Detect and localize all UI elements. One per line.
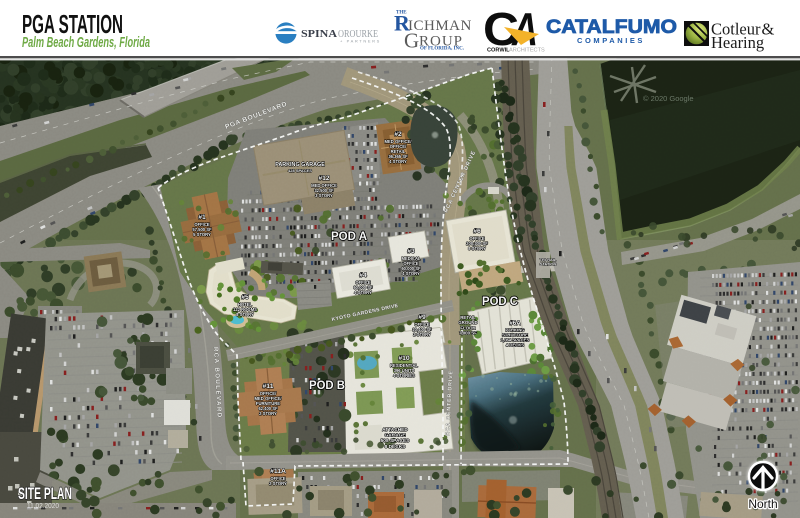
svg-text:ARCHITECTS: ARCHITECTS	[509, 48, 545, 54]
svg-text:CATALFUMO: CATALFUMO	[546, 17, 677, 38]
svg-text:Palm Beach Gardens, Florida: Palm Beach Gardens, Florida	[22, 34, 150, 51]
svg-text:Hearing: Hearing	[711, 33, 764, 52]
svg-text:G: G	[404, 29, 419, 53]
svg-text:CORWIL: CORWIL	[487, 48, 510, 54]
svg-text:+ PARTNERS: + PARTNERS	[340, 39, 381, 44]
svg-text:North: North	[748, 497, 777, 511]
svg-text:SPINA: SPINA	[301, 28, 337, 40]
svg-text:11.02.2020: 11.02.2020	[27, 503, 59, 510]
svg-text:COMPANIES: COMPANIES	[577, 38, 645, 45]
svg-text:SITE PLAN: SITE PLAN	[18, 485, 72, 503]
svg-text:OF FLORIDA, INC.: OF FLORIDA, INC.	[420, 47, 465, 52]
